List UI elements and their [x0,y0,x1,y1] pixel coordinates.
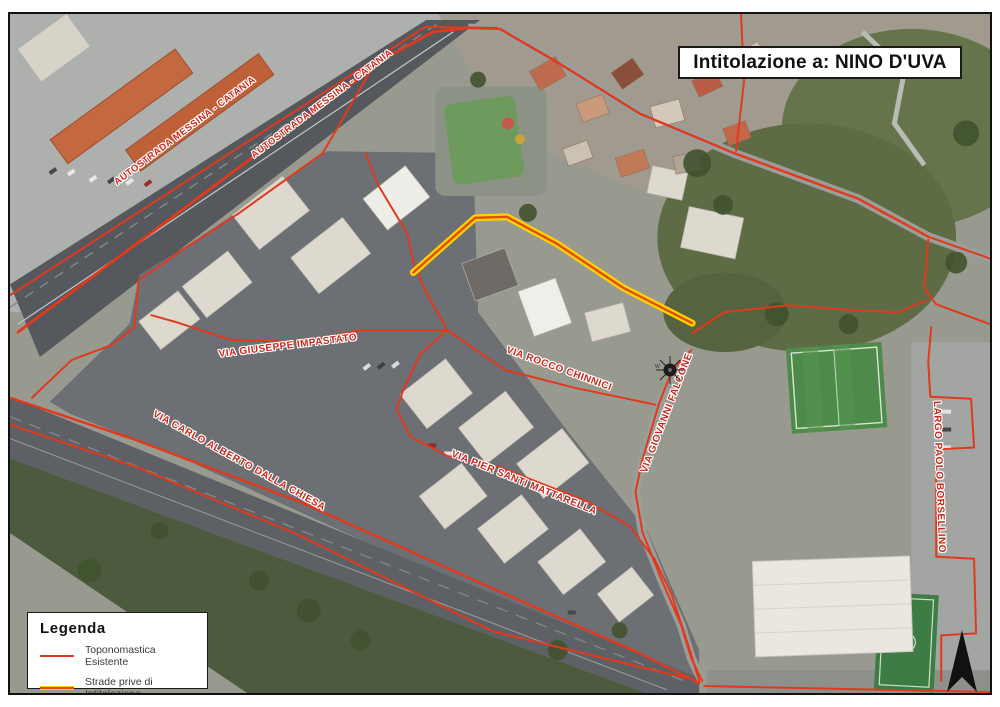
legend-swatch-unnamed-line [40,686,74,691]
road-line-unnamed-outline [413,217,692,323]
legend-item-unnamed: Strade prive di Intitolazione [40,676,195,695]
road-line-autostrada-right [18,28,468,332]
legend-title: Legenda [40,620,195,637]
road-overlay-layer [10,14,990,693]
road-line-autostrada-left [10,27,497,295]
map-canvas: AUTOSTRADA MESSINA - CATANIA AUTOSTRADA … [8,12,992,695]
compass-west-label: W [655,364,660,370]
road-line-inner-vertical [366,153,448,330]
legend-label-existing: Toponomastica Esistente [85,644,195,668]
title-box: Intitolazione a: NINO D'UVA [678,46,962,79]
road-line-top-vertical [736,14,744,151]
legend-item-existing: Toponomastica Esistente [40,644,195,668]
title-text: Intitolazione a: NINO D'UVA [693,52,946,74]
legend: Legenda Toponomastica Esistente Strade p… [27,612,208,689]
map-sheet: AUTOSTRADA MESSINA - CATANIA AUTOSTRADA … [0,0,1000,707]
legend-swatch-existing-line [40,655,74,657]
compass-marker-icon: W [653,353,687,387]
road-line-top-branch-south [924,240,990,325]
road-line-green-loop [692,300,926,333]
legend-label-unnamed: Strade prive di Intitolazione [85,676,195,695]
north-arrow-icon [947,630,977,692]
road-line-top-branch-east [928,237,990,260]
